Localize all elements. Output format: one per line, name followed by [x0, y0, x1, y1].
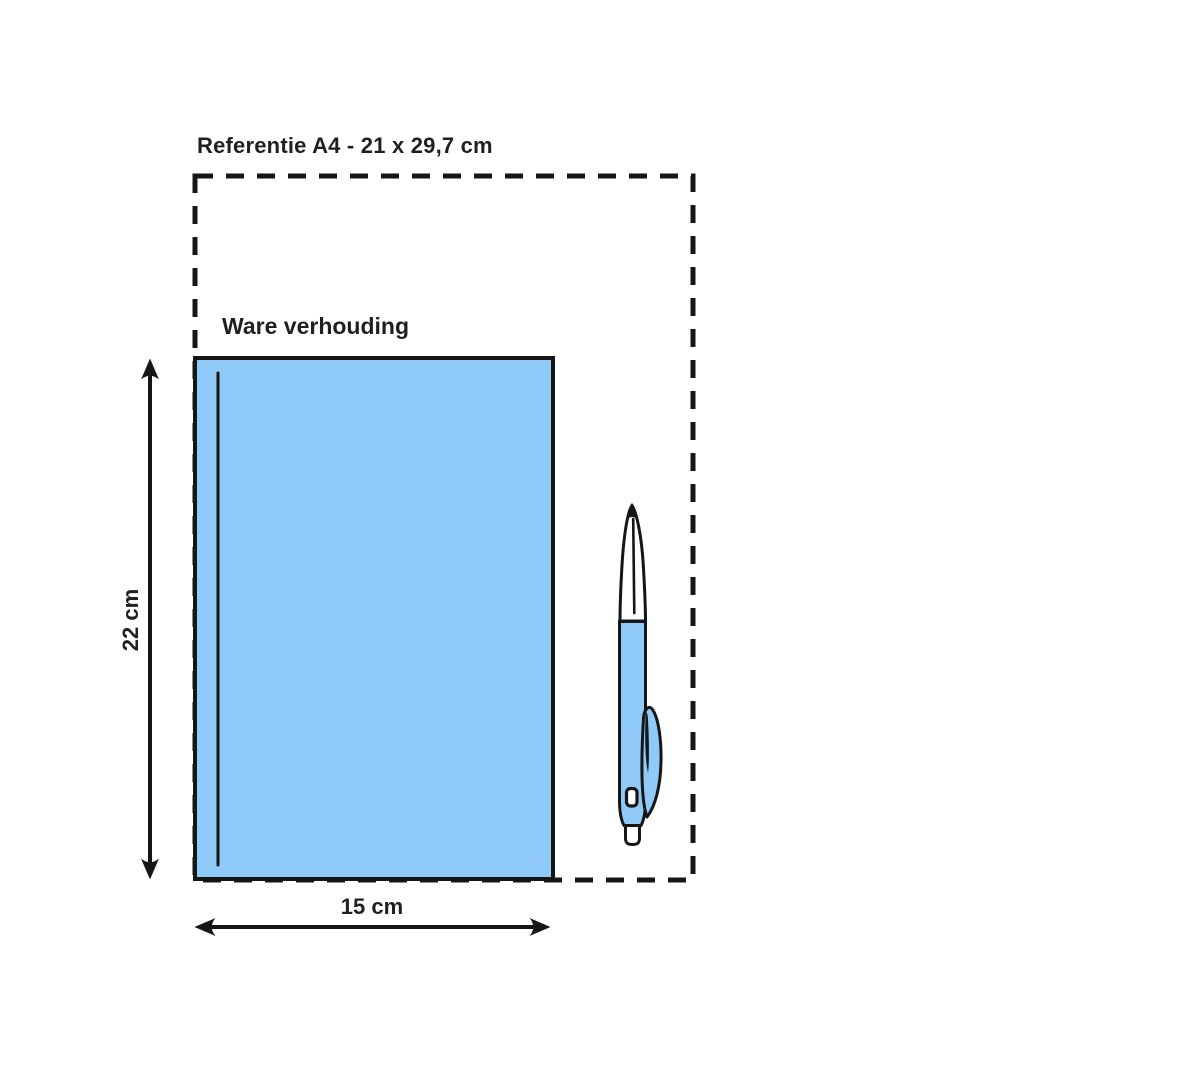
height-arrow — [141, 359, 159, 880]
pen-refill-line — [633, 519, 634, 613]
true-scale-label: Ware verhouding — [222, 315, 409, 338]
width-dimension-label: 15 cm — [341, 896, 403, 918]
product-dimension-diagram: Referentie A4 - 21 x 29,7 cm Ware verhou… — [0, 0, 1200, 1066]
reference-size-label: Referentie A4 - 21 x 29,7 cm — [197, 135, 493, 157]
pen-clip — [642, 707, 661, 817]
pen-push-button — [626, 826, 640, 845]
height-dimension-label: 22 cm — [120, 589, 142, 651]
pen-icon — [620, 503, 662, 845]
pen-slot — [627, 789, 638, 807]
book-front — [195, 358, 553, 879]
width-arrow — [195, 918, 551, 936]
diagram-shapes — [0, 0, 1200, 1066]
